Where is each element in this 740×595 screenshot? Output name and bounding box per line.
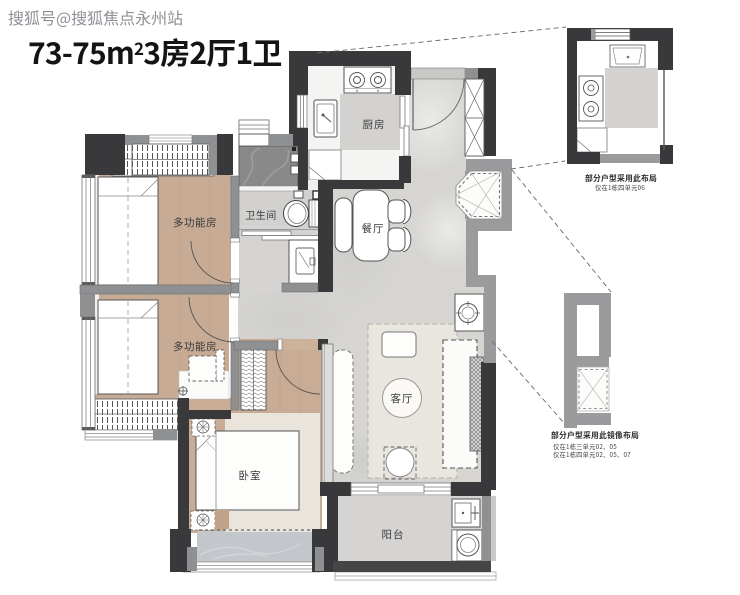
svg-text:卫生间: 卫生间 xyxy=(245,207,277,222)
svg-text:餐厅: 餐厅 xyxy=(362,221,385,236)
svg-text:多功能房: 多功能房 xyxy=(173,215,217,230)
svg-text:仅在1栋四单元02、05、07: 仅在1栋四单元02、05、07 xyxy=(553,450,631,459)
svg-text:阳台: 阳台 xyxy=(382,527,405,542)
svg-text:搜狐号@搜狐焦点永州站: 搜狐号@搜狐焦点永州站 xyxy=(8,5,183,29)
svg-text:厨房: 厨房 xyxy=(363,117,386,132)
svg-text:卧室: 卧室 xyxy=(239,468,262,483)
svg-text:仅在1栋四单元06: 仅在1栋四单元06 xyxy=(595,183,645,192)
svg-text:部分户型采用此镜像布局: 部分户型采用此镜像布局 xyxy=(551,430,639,441)
svg-text:客厅: 客厅 xyxy=(391,391,414,406)
svg-text:73-75m23房2厅1卫: 73-75m23房2厅1卫 xyxy=(28,29,282,73)
svg-text:多功能房: 多功能房 xyxy=(173,339,217,354)
